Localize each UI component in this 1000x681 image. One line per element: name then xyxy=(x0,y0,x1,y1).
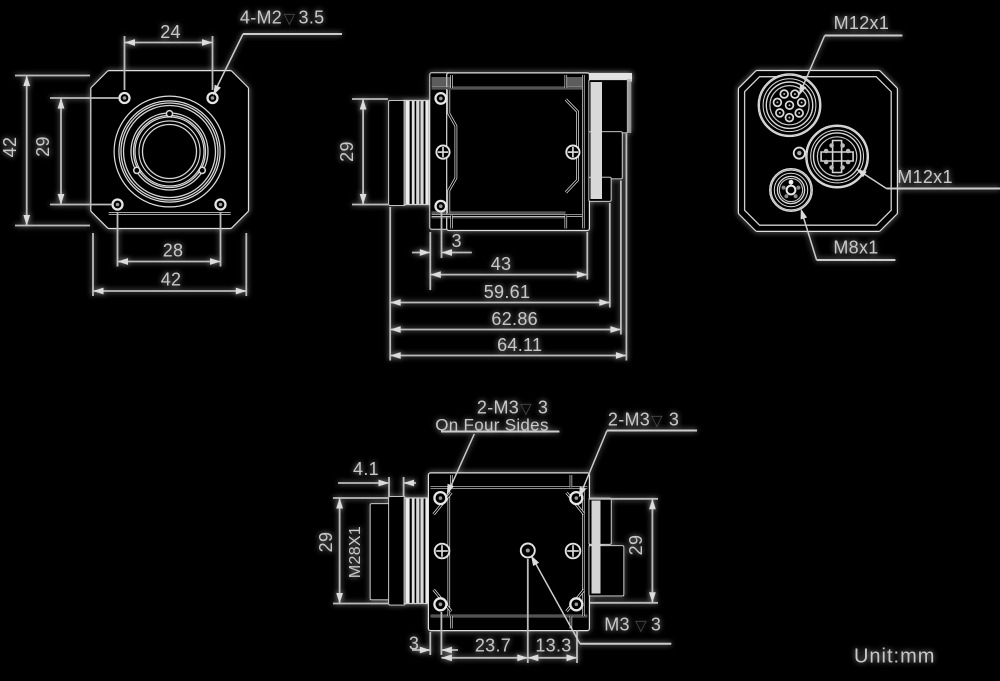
svg-text:3: 3 xyxy=(538,398,548,418)
svg-text:28: 28 xyxy=(163,241,184,261)
svg-text:M28X1: M28X1 xyxy=(347,526,364,578)
svg-text:29: 29 xyxy=(626,535,646,556)
svg-text:42: 42 xyxy=(161,270,182,290)
svg-text:M12x1: M12x1 xyxy=(834,13,890,33)
svg-text:43: 43 xyxy=(491,254,512,274)
svg-text:2-M3: 2-M3 xyxy=(477,398,519,418)
svg-text:29: 29 xyxy=(316,532,336,553)
svg-text:62.86: 62.86 xyxy=(491,309,538,329)
svg-text:M8x1: M8x1 xyxy=(833,238,878,258)
svg-text:13.3: 13.3 xyxy=(535,636,571,656)
svg-text:4.1: 4.1 xyxy=(353,459,379,479)
svg-text:3.5: 3.5 xyxy=(299,8,325,28)
svg-text:29: 29 xyxy=(33,136,53,157)
svg-text:Unit:mm: Unit:mm xyxy=(854,646,935,668)
svg-text:3: 3 xyxy=(669,410,679,430)
svg-text:3: 3 xyxy=(651,615,661,635)
svg-text:24: 24 xyxy=(160,22,181,42)
svg-text:M3: M3 xyxy=(604,615,630,635)
svg-text:▽: ▽ xyxy=(635,618,647,635)
svg-text:64.11: 64.11 xyxy=(497,335,542,355)
svg-text:3: 3 xyxy=(451,231,461,251)
svg-text:M12x1: M12x1 xyxy=(897,167,953,187)
svg-text:4-M2: 4-M2 xyxy=(240,8,282,28)
svg-text:▽: ▽ xyxy=(651,413,663,430)
svg-text:3: 3 xyxy=(409,634,419,654)
svg-text:42: 42 xyxy=(0,137,20,158)
svg-text:23.7: 23.7 xyxy=(475,636,511,656)
svg-text:59.61: 59.61 xyxy=(484,282,531,302)
svg-text:29: 29 xyxy=(337,141,357,162)
svg-text:▽: ▽ xyxy=(284,11,296,28)
svg-text:2-M3: 2-M3 xyxy=(608,410,650,430)
